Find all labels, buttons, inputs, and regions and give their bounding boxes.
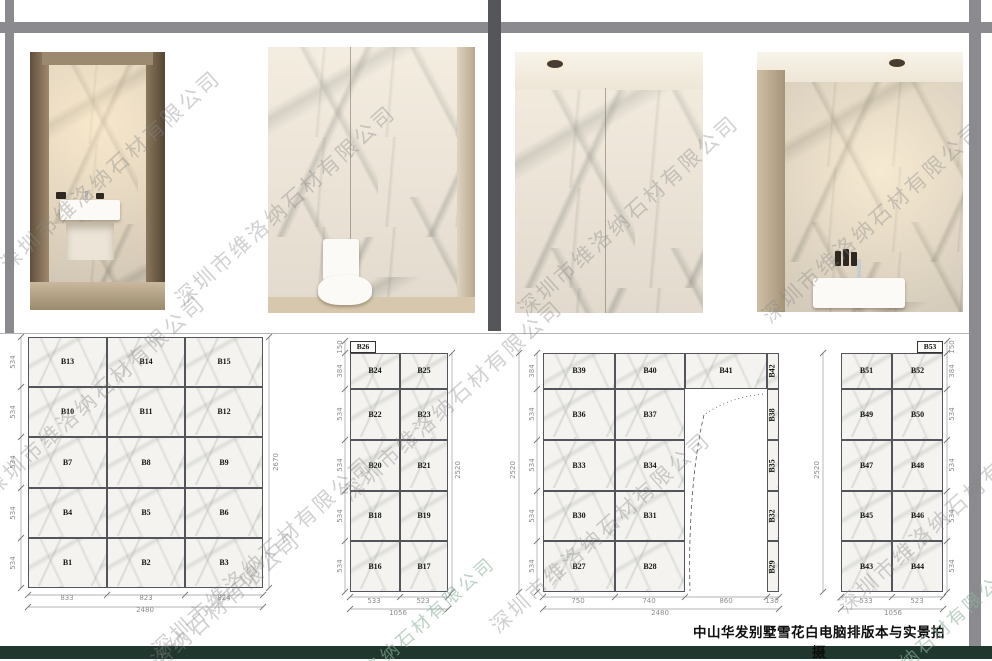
- bathroom-photo-vanity-niche: [757, 52, 963, 312]
- recessed-light: [889, 59, 905, 67]
- slab-B11: B11: [107, 387, 185, 437]
- dim-line: [889, 594, 895, 600]
- slab-B7: B7: [28, 437, 107, 488]
- sink-basin: [813, 278, 905, 308]
- slab-label: B39: [572, 367, 585, 375]
- ceiling: [515, 52, 703, 90]
- dimension-label: 534: [336, 559, 344, 572]
- slab-B45: B45: [841, 491, 892, 541]
- dim-line: [944, 488, 950, 494]
- slab-label: B8: [141, 459, 150, 467]
- slab-label: B14: [139, 358, 152, 366]
- counter-items: [96, 193, 104, 199]
- slab-label: B7: [63, 459, 72, 467]
- slab-B10: B10: [28, 387, 107, 437]
- slab-B37: B37: [615, 389, 685, 440]
- dimension-label: 384: [336, 364, 344, 377]
- dimension-label: 833: [60, 594, 73, 602]
- dim-line: [534, 437, 540, 443]
- dim-line: [534, 589, 540, 595]
- door-lintel: [42, 52, 153, 65]
- slab-B26: B26: [350, 341, 376, 353]
- slab-label: B38: [769, 408, 777, 421]
- slab-B36: B36: [543, 389, 615, 440]
- slab-label: B26: [357, 343, 370, 351]
- slab-B20: B20: [350, 440, 400, 491]
- slab-B22: B22: [350, 389, 400, 440]
- dimension-label: 740: [642, 597, 655, 605]
- slab-label: B27: [572, 563, 585, 571]
- dimension-label: 534: [9, 405, 17, 418]
- dimension-label: 534: [336, 407, 344, 420]
- slab-label: B32: [769, 509, 777, 522]
- dim-line: [838, 594, 844, 600]
- dim-line: [260, 592, 266, 598]
- slab-label: B18: [368, 512, 381, 520]
- dim-line: [18, 485, 24, 491]
- toiletry-bottle: [835, 251, 841, 266]
- bathroom-photo-vanity-through-door: [30, 52, 165, 310]
- slab-B30: B30: [543, 491, 615, 541]
- slab-label: B20: [368, 462, 381, 470]
- slab-label: B30: [572, 512, 585, 520]
- door-frame-right: [146, 52, 165, 310]
- slab-label: B2: [141, 559, 150, 567]
- door-swing-dotted: [704, 394, 763, 415]
- dim-line: [342, 538, 348, 544]
- dimension-label: 534: [528, 407, 536, 420]
- dimension-label: 534: [528, 559, 536, 572]
- dim-line: [449, 589, 455, 595]
- frame-bar-center-divider: [488, 0, 501, 331]
- dim-line: [449, 350, 455, 356]
- bathroom-photo-marble-corner: [515, 52, 703, 313]
- slab-label: B19: [417, 512, 430, 520]
- slab-label: B25: [417, 367, 430, 375]
- dim-line: [18, 585, 24, 591]
- slab-label: B9: [219, 459, 228, 467]
- slab-label: B12: [217, 408, 230, 416]
- dim-line: [540, 594, 546, 600]
- dimension-label: 533: [859, 597, 872, 605]
- dim-line: [18, 535, 24, 541]
- dimension-label: 860: [719, 597, 732, 605]
- dim-line: [397, 594, 403, 600]
- dim-line: [944, 437, 950, 443]
- slab-B47: B47: [841, 440, 892, 491]
- slab-B18: B18: [350, 491, 400, 541]
- slab-B14: B14: [107, 337, 185, 387]
- dimension-label: 534: [336, 509, 344, 522]
- dimension-label: 534: [9, 455, 17, 468]
- slab-label: B41: [719, 367, 732, 375]
- slab-B3: B3: [185, 538, 263, 588]
- slab-label: B29: [769, 560, 777, 573]
- dim-line: [534, 538, 540, 544]
- dimension-label: 534: [948, 559, 956, 572]
- dim-line: [342, 386, 348, 392]
- slab-label: B10: [61, 408, 74, 416]
- slab-B38: B38: [767, 389, 779, 440]
- slab-B32: B32: [767, 491, 779, 541]
- slab-B2: B2: [107, 538, 185, 588]
- door-frame-left: [30, 52, 49, 310]
- dim-line: [820, 350, 826, 356]
- frame-bar-right: [969, 0, 981, 646]
- slab-label: B22: [368, 411, 381, 419]
- dimension-label: 150: [336, 340, 344, 353]
- dimension-label: 533: [367, 597, 380, 605]
- slab-B5: B5: [107, 488, 185, 538]
- dim-line: [18, 434, 24, 440]
- slab-B27: B27: [543, 541, 615, 592]
- light-glow: [515, 52, 703, 313]
- dimension-label: 150: [948, 340, 956, 353]
- recessed-light: [547, 60, 563, 68]
- slab-label: B52: [911, 367, 924, 375]
- slab-B21: B21: [400, 440, 448, 491]
- dim-line: [944, 386, 950, 392]
- slab-B19: B19: [400, 491, 448, 541]
- slab-label: B37: [643, 411, 656, 419]
- dim-line: [682, 594, 688, 600]
- slab-label: B36: [572, 411, 585, 419]
- dim-line: [534, 386, 540, 392]
- slab-B49: B49: [841, 389, 892, 440]
- dim-line: [266, 585, 272, 591]
- frame-bar-left: [5, 0, 14, 334]
- dimension-label: 384: [948, 364, 956, 377]
- dim-line: [18, 334, 24, 340]
- layout-sheet-page: B13B14B15B10B11B12B7B8B9B4B5B6B1B2B35345…: [0, 0, 992, 661]
- slab-label: B1: [63, 559, 72, 567]
- dim-line: [940, 606, 946, 612]
- light-glow: [30, 52, 165, 310]
- dim-line: [516, 589, 522, 595]
- slab-B42: B42: [767, 353, 779, 389]
- dim-line: [18, 384, 24, 390]
- dimension-label: 2520: [454, 461, 462, 479]
- slab-label: B16: [368, 563, 381, 571]
- slab-B12: B12: [185, 387, 263, 437]
- slab-label: B35: [769, 459, 777, 472]
- slab-label: B48: [911, 462, 924, 470]
- wall-corner: [605, 88, 606, 313]
- dimension-label: 534: [9, 556, 17, 569]
- dim-line: [342, 437, 348, 443]
- dimension-label: 824: [217, 594, 230, 602]
- dimension-label: 534: [9, 506, 17, 519]
- dimension-label: 523: [910, 597, 923, 605]
- dimension-label: 534: [948, 407, 956, 420]
- dimension-label: 2670: [272, 453, 280, 471]
- slab-B52: B52: [892, 353, 943, 389]
- slab-label: B3: [219, 559, 228, 567]
- slab-B25: B25: [400, 353, 448, 389]
- dim-line: [944, 589, 950, 595]
- vanity-base: [66, 222, 114, 260]
- slab-B17: B17: [400, 541, 448, 592]
- slab-label: B42: [769, 364, 777, 377]
- dimension-label: 2520: [509, 461, 517, 479]
- dim-line: [940, 594, 946, 600]
- dim-line: [612, 594, 618, 600]
- dim-line: [182, 592, 188, 598]
- slab-B9: B9: [185, 437, 263, 488]
- sheet-title: 中山华发别墅雪花白电脑排版本与实景拍摄: [691, 621, 947, 661]
- dimension-label: 523: [416, 597, 429, 605]
- dim-line: [445, 606, 451, 612]
- dimension-label: 1056: [884, 609, 902, 617]
- dim-line: [445, 594, 451, 600]
- slab-B53: B53: [917, 341, 943, 353]
- dimension-label: 130: [765, 597, 778, 605]
- slab-label: B43: [860, 563, 873, 571]
- light-glow: [268, 47, 475, 313]
- slab-label: B34: [643, 462, 656, 470]
- dim-line: [776, 606, 782, 612]
- dimension-label: 534: [528, 509, 536, 522]
- slab-label: B51: [860, 367, 873, 375]
- slab-label: B33: [572, 462, 585, 470]
- dimension-label: 534: [528, 458, 536, 471]
- slab-label: B47: [860, 462, 873, 470]
- slab-label: B23: [417, 411, 430, 419]
- dim-line: [342, 589, 348, 595]
- slab-B33: B33: [543, 440, 615, 491]
- dimension-label: 823: [139, 594, 152, 602]
- slab-B23: B23: [400, 389, 448, 440]
- dim-line: [104, 592, 110, 598]
- door-frame-left: [757, 70, 785, 312]
- slab-label: B50: [911, 411, 924, 419]
- counter-items: [56, 192, 66, 199]
- slab-B50: B50: [892, 389, 943, 440]
- slab-label: B44: [911, 563, 924, 571]
- dim-line: [534, 350, 540, 356]
- slab-B34: B34: [615, 440, 685, 491]
- dim-line: [838, 606, 844, 612]
- slab-B16: B16: [350, 541, 400, 592]
- dim-line: [516, 350, 522, 356]
- dimension-label: 534: [9, 355, 17, 368]
- slab-B40: B40: [615, 353, 685, 389]
- faucet: [857, 259, 861, 279]
- slab-B48: B48: [892, 440, 943, 491]
- dimension-label: 2480: [136, 606, 154, 614]
- slab-label: B31: [643, 512, 656, 520]
- toiletry-bottle: [843, 249, 849, 266]
- dimension-label: 1056: [389, 609, 407, 617]
- slab-label: B46: [911, 512, 924, 520]
- slab-label: B45: [860, 512, 873, 520]
- dim-line: [260, 604, 266, 610]
- slab-B51: B51: [841, 353, 892, 389]
- dim-line: [820, 589, 826, 595]
- dim-line: [266, 334, 272, 340]
- slab-B43: B43: [841, 541, 892, 592]
- dim-line: [534, 488, 540, 494]
- door-frame-right: [457, 47, 475, 313]
- slab-label: B15: [217, 358, 230, 366]
- slab-B41: B41: [685, 353, 767, 389]
- dimension-label: 534: [948, 458, 956, 471]
- section-divider-line: [0, 333, 969, 334]
- slab-B15: B15: [185, 337, 263, 387]
- floor: [30, 282, 165, 310]
- slab-B35: B35: [767, 440, 779, 491]
- slab-label: B24: [368, 367, 381, 375]
- slab-label: B6: [219, 509, 228, 517]
- slab-label: B11: [140, 408, 153, 416]
- dim-line: [25, 592, 31, 598]
- slab-label: B40: [643, 367, 656, 375]
- dimension-label: 750: [571, 597, 584, 605]
- slab-label: B53: [924, 343, 937, 351]
- ceiling: [757, 52, 963, 82]
- dim-line: [25, 604, 31, 610]
- slab-label: B13: [61, 358, 74, 366]
- dim-line: [347, 606, 353, 612]
- dimension-label: 2480: [651, 609, 669, 617]
- slab-label: B5: [141, 509, 150, 517]
- toilet-bowl: [318, 275, 372, 305]
- dimension-label: 384: [528, 364, 536, 377]
- slab-label: B21: [417, 462, 430, 470]
- slab-B29: B29: [767, 541, 779, 592]
- sink-basin: [60, 200, 120, 220]
- slab-B46: B46: [892, 491, 943, 541]
- slab-label: B4: [63, 509, 72, 517]
- slab-B28: B28: [615, 541, 685, 592]
- slab-B24: B24: [350, 353, 400, 389]
- slab-B4: B4: [28, 488, 107, 538]
- dim-line: [347, 594, 353, 600]
- door-swing-arc: [690, 415, 704, 591]
- slab-label: B49: [860, 411, 873, 419]
- slab-label: B28: [643, 563, 656, 571]
- dimension-label: 2520: [813, 461, 821, 479]
- faucet: [85, 191, 88, 200]
- slab-B13: B13: [28, 337, 107, 387]
- slab-label: B17: [417, 563, 430, 571]
- slab-B1: B1: [28, 538, 107, 588]
- dim-line: [944, 538, 950, 544]
- slab-B6: B6: [185, 488, 263, 538]
- dim-line: [342, 488, 348, 494]
- dimension-label: 534: [948, 509, 956, 522]
- slab-B8: B8: [107, 437, 185, 488]
- dim-line: [540, 606, 546, 612]
- bathroom-photo-toilet-marble-corner: [268, 47, 475, 313]
- slab-B31: B31: [615, 491, 685, 541]
- slab-B39: B39: [543, 353, 615, 389]
- slab-B44: B44: [892, 541, 943, 592]
- dimension-label: 534: [336, 458, 344, 471]
- floor: [268, 297, 475, 313]
